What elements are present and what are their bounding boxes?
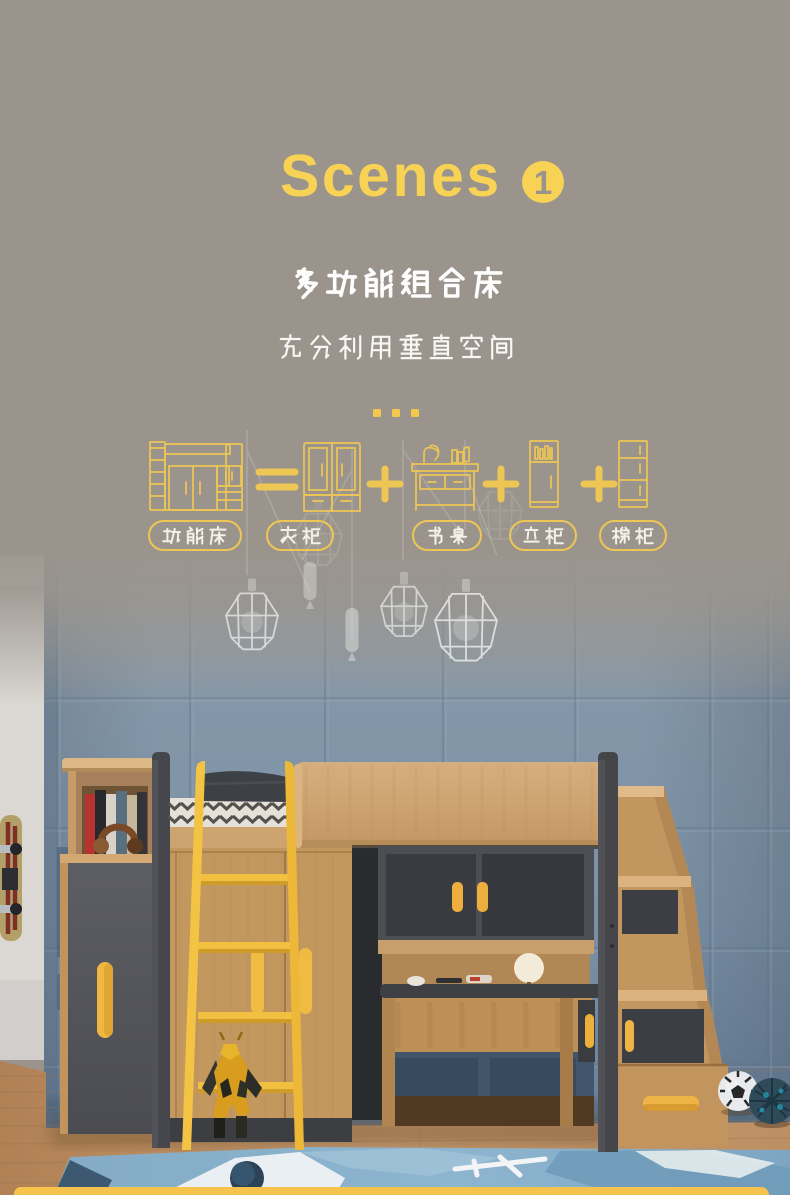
svg-text:Scenes: Scenes xyxy=(280,143,502,209)
svg-text:1: 1 xyxy=(534,164,552,201)
